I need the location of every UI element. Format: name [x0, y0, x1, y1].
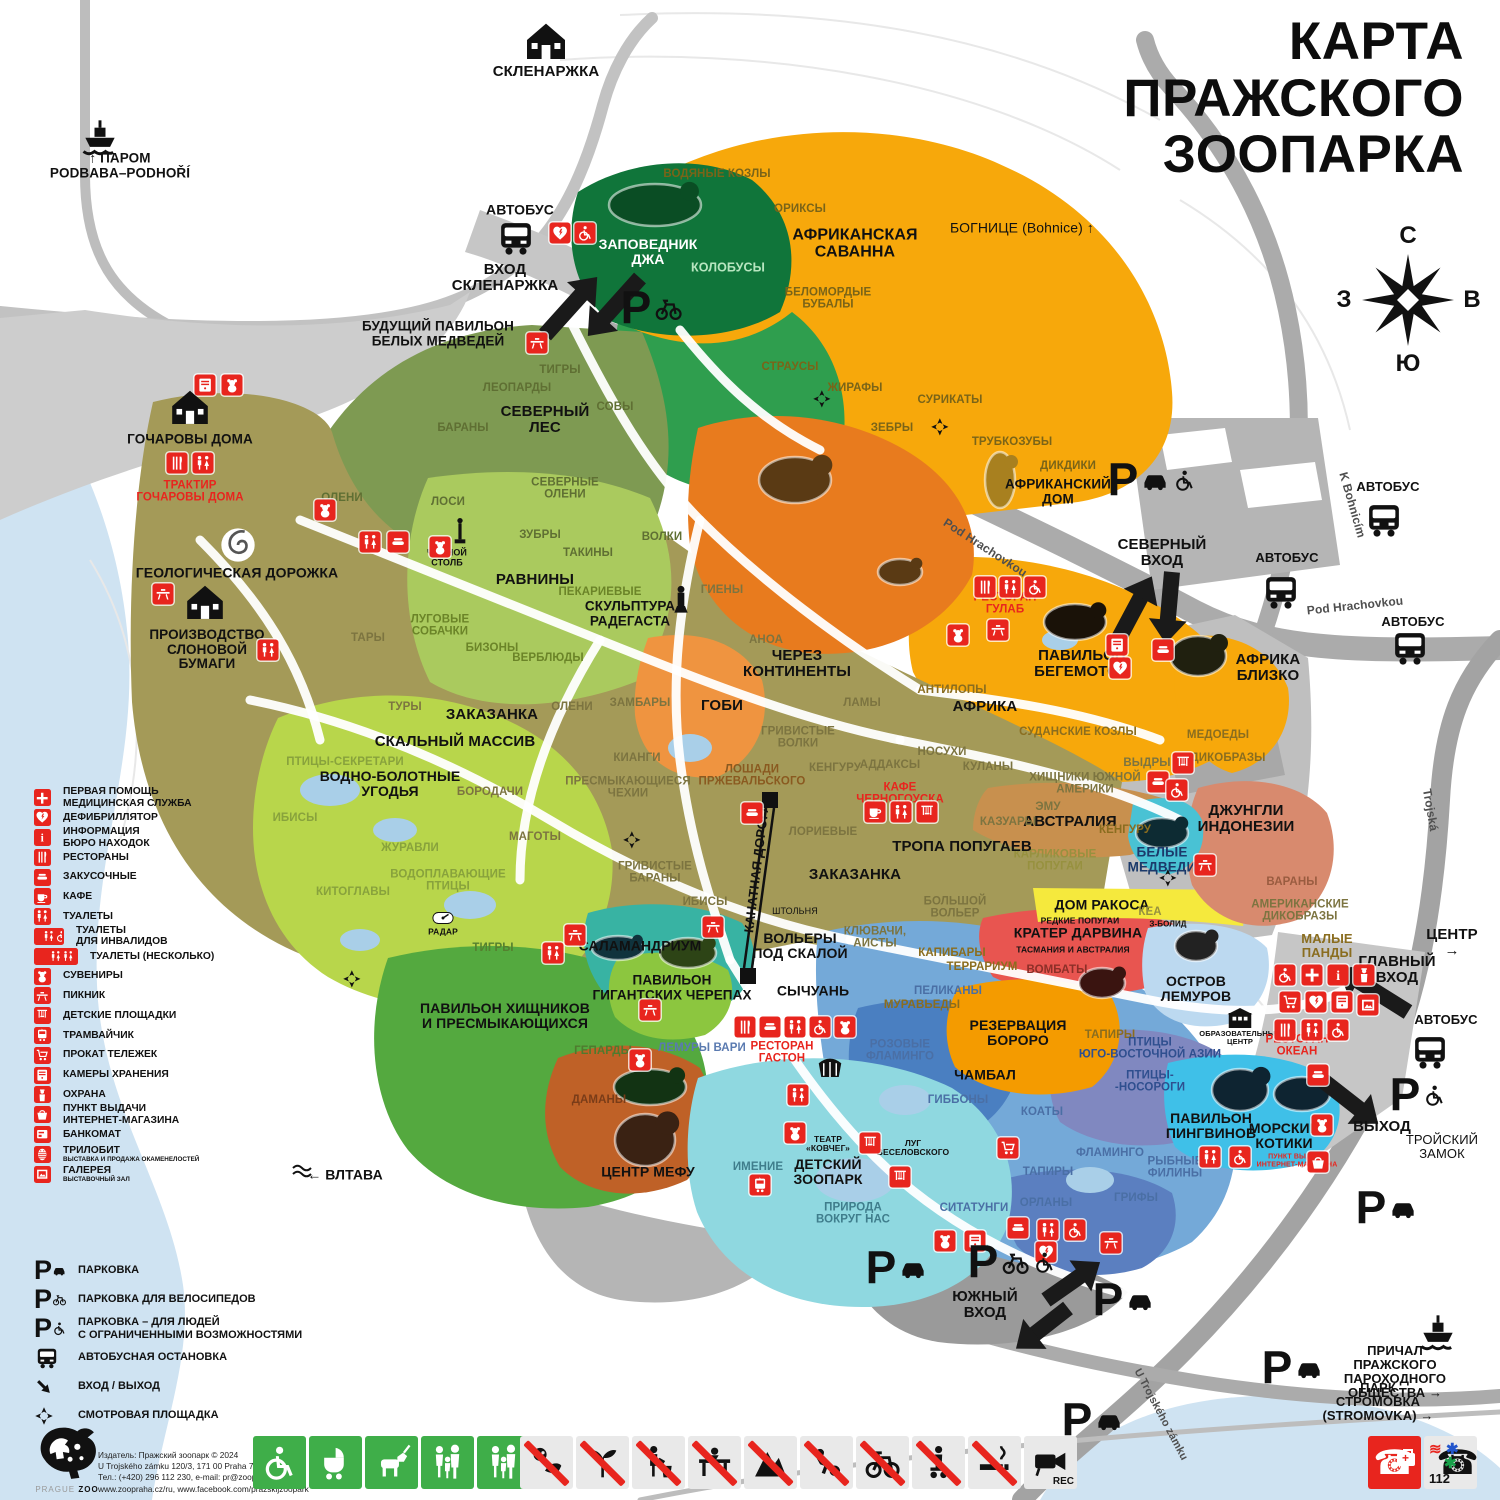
zoo-logo-icon — [36, 1424, 98, 1480]
no-segway-icon — [912, 1436, 965, 1489]
legend-label: ГАЛЕРЕЯВЫСТАВОЧНЫЙ ЗАЛ — [63, 1165, 130, 1184]
footer: PRAGUE ZOO Издатель: Пражский зоопарк © … — [0, 1418, 1500, 1500]
zoo-logo-text: PRAGUE ZOO — [28, 1485, 106, 1494]
legend-item-souv: СУВЕНИРЫ — [34, 966, 294, 986]
legend-label: ТУАЛЕТЫ — [63, 911, 113, 923]
animal-silhouette — [878, 558, 922, 585]
play-icon — [34, 1007, 51, 1024]
animal-silhouette — [1212, 1067, 1270, 1111]
animal-silhouette — [1170, 634, 1228, 676]
title-line: ПРАЖСКОГО — [1123, 71, 1464, 128]
family-icon — [421, 1436, 474, 1489]
legend-label: ИНФОРМАЦИЯ БЮРО НАХОДОК — [63, 826, 150, 849]
legend-label: ПАРКОВКА — [78, 1264, 139, 1276]
p-dis-icon: P — [34, 1315, 68, 1342]
title-line: ЗООПАРКА — [1123, 127, 1464, 184]
legend-label: КАФЕ — [63, 891, 92, 903]
compass-rose — [1362, 254, 1454, 346]
legend-label: ДЕФИБРИЛЛЯТОР — [63, 812, 158, 824]
wheelchair-access-icon — [253, 1436, 306, 1489]
legend-label: ОХРАНА — [63, 1089, 106, 1101]
cctv-rec-icon: REC — [1024, 1436, 1077, 1489]
prohibition-icons: REC — [520, 1436, 1077, 1489]
no-cycling-icon — [856, 1436, 909, 1489]
snack-icon — [34, 869, 51, 886]
picnic-icon — [34, 987, 51, 1004]
legend-label: ПУНКТ ВЫДАЧИ ИНТЕРНЕТ-МАГАЗИНА — [63, 1103, 179, 1126]
legend-item-gallery: ГАЛЕРЕЯВЫСТАВОЧНЫЙ ЗАЛ — [34, 1164, 294, 1184]
legend-label: ТУАЛЕТЫ (НЕСКОЛЬКО) — [90, 951, 214, 963]
legend-item-snack: ЗАКУСОЧНЫЕ — [34, 867, 294, 887]
legend-label: ВХОД / ВЫХОД — [78, 1380, 160, 1392]
legend-label: ТУАЛЕТЫ ДЛЯ ИНВАЛИДОВ — [76, 925, 168, 948]
legend-label: РЕСТОРАНЫ — [63, 852, 129, 864]
aed-icon — [34, 809, 51, 826]
legend-item-cart: ПРОКАТ ТЕЛЕЖЕК — [34, 1045, 294, 1065]
trilobite-icon — [34, 1146, 51, 1163]
legend-label: КАМЕРЫ ХРАНЕНИЯ — [63, 1069, 169, 1081]
bus-icon — [34, 1345, 68, 1371]
dog-on-leash-icon — [365, 1436, 418, 1489]
legend-sublabel: ВЫСТАВКА И ПРОДАЖА ОКАМЕНЕЛОСТЕЙ — [63, 1156, 199, 1163]
no-rock-climbing-icon — [744, 1436, 797, 1489]
emergency-112-icon: ≋✱✱☎112 — [1424, 1436, 1477, 1489]
info-icon — [34, 829, 51, 846]
title-line: КАРТА — [1123, 14, 1464, 71]
emergency-icons: ☎≋✱✱☎112 — [1368, 1436, 1477, 1489]
no-smoking-icon — [968, 1436, 1021, 1489]
cafe-icon — [34, 888, 51, 905]
wcd-icon — [34, 928, 64, 945]
map-title: КАРТА ПРАЖСКОГО ЗООПАРКА — [1123, 14, 1464, 184]
rest-icon — [34, 849, 51, 866]
legend-item-pickup: ПУНКТ ВЫДАЧИ ИНТЕРНЕТ-МАГАЗИНА — [34, 1105, 294, 1125]
p-bike-icon: P — [34, 1286, 68, 1313]
legend-label: ПРОКАТ ТЕЛЕЖЕК — [63, 1049, 157, 1061]
legend-label: ТРАМВАЙЧИК — [63, 1030, 134, 1042]
wc-icon — [34, 908, 51, 925]
fa-icon — [34, 789, 51, 806]
legend-services: ПЕРВАЯ ПОМОЩЬ МЕДИЦИНСКАЯ СЛУЖБАДЕФИБРИЛ… — [34, 788, 294, 1184]
no-littering-icon — [632, 1436, 685, 1489]
animal-silhouette — [1175, 930, 1219, 962]
legend-label: АВТОБУСНАЯ ОСТАНОВКА — [78, 1351, 227, 1363]
zone-dzhungli-indonezii — [1187, 781, 1334, 926]
legend-item-rest: РЕСТОРАНЫ — [34, 847, 294, 867]
legend-item-p-bike: PПАРКОВКА ДЛЯ ВЕЛОСИПЕДОВ — [34, 1285, 314, 1314]
animal-silhouette — [1079, 967, 1126, 999]
pickup-icon — [34, 1106, 51, 1123]
legend-item-guard: ОХРАНА — [34, 1085, 294, 1105]
legend-label: ЗАКУСОЧНЫЕ — [63, 871, 137, 883]
no-feeding-icon — [520, 1436, 573, 1489]
souv-icon — [34, 968, 51, 985]
legend-label: ПАРКОВКА ДЛЯ ВЕЛОСИПЕДОВ — [78, 1293, 256, 1305]
legend-label: ПИКНИК — [63, 990, 105, 1002]
no-sitting-on-barriers-icon — [688, 1436, 741, 1489]
gallery-icon — [34, 1166, 51, 1183]
prague-zoo-map-poster: i — [0, 0, 1500, 1500]
legend-item-wc: ТУАЛЕТЫ — [34, 907, 294, 927]
legend-item-wcmulti: ТУАЛЕТЫ (НЕСКОЛЬКО) — [34, 946, 294, 966]
no-ball-games-icon — [800, 1436, 853, 1489]
legend-label: ТРИЛОБИТВЫСТАВКА И ПРОДАЖА ОКАМЕНЕЛОСТЕЙ — [63, 1145, 199, 1164]
prague-zoo-logo: PRAGUE ZOO — [28, 1424, 106, 1494]
animal-silhouette — [660, 937, 716, 969]
legend-item-info: ИНФОРМАЦИЯ БЮРО НАХОДОК — [34, 828, 294, 848]
legend-item-p-dis: PПАРКОВКА – ДЛЯ ЛЮДЕЙ С ОГРАНИЧЕННЫМИ ВО… — [34, 1314, 314, 1343]
legend-label: ПАРКОВКА – ДЛЯ ЛЮДЕЙ С ОГРАНИЧЕННЫМИ ВОЗ… — [78, 1316, 302, 1341]
legend-label: ДЕТСКИЕ ПЛОЩАДКИ — [63, 1010, 176, 1022]
no-picking-plants-icon — [576, 1436, 629, 1489]
stroller-icon — [309, 1436, 362, 1489]
legend-item-trilobite: ТРИЛОБИТВЫСТАВКА И ПРОДАЖА ОКАМЕНЕЛОСТЕЙ — [34, 1144, 294, 1164]
legend-item-p-car: PПАРКОВКА — [34, 1256, 314, 1285]
zone-ravniny — [407, 472, 671, 704]
legend-item-arrow: ВХОД / ВЫХОД — [34, 1372, 314, 1401]
tram-icon — [34, 1027, 51, 1044]
legend-label: ПЕРВАЯ ПОМОЩЬ МЕДИЦИНСКАЯ СЛУЖБА — [63, 786, 192, 809]
animal-silhouette — [592, 935, 644, 960]
guard-icon — [34, 1086, 51, 1103]
cart-icon — [34, 1047, 51, 1064]
legend-item-play: ДЕТСКИЕ ПЛОЩАДКИ — [34, 1006, 294, 1026]
wcmulti-icon — [34, 948, 78, 965]
legend-transport: PПАРКОВКАPПАРКОВКА ДЛЯ ВЕЛОСИПЕДОВPПАРКО… — [34, 1256, 314, 1430]
legend-item-picnic: ПИКНИК — [34, 986, 294, 1006]
legend-item-wcd: ТУАЛЕТЫ ДЛЯ ИНВАЛИДОВ — [34, 927, 294, 947]
legend-label: БАНКОМАТ — [63, 1129, 121, 1141]
animal-silhouette — [1136, 817, 1188, 849]
animal-silhouette — [1044, 602, 1106, 640]
emergency-phone-icon: ☎ — [1368, 1436, 1421, 1489]
legend-label: СУВЕНИРЫ — [63, 970, 123, 982]
atm-icon — [34, 1126, 51, 1143]
legend-item-lock: КАМЕРЫ ХРАНЕНИЯ — [34, 1065, 294, 1085]
legend-item-bus: АВТОБУСНАЯ ОСТАНОВКА — [34, 1343, 314, 1372]
legend-item-cafe: КАФЕ — [34, 887, 294, 907]
legend-item-tram: ТРАМВАЙЧИК — [34, 1026, 294, 1046]
arrow-icon — [34, 1377, 68, 1397]
accessibility-icons — [253, 1436, 530, 1489]
animal-silhouette — [614, 1067, 686, 1105]
p-car-icon: P — [34, 1257, 68, 1284]
legend-item-aed: ДЕФИБРИЛЛЯТОР — [34, 808, 294, 828]
legend-sublabel: ВЫСТАВОЧНЫЙ ЗАЛ — [63, 1176, 130, 1183]
legend-item-fa: ПЕРВАЯ ПОМОЩЬ МЕДИЦИНСКАЯ СЛУЖБА — [34, 788, 294, 808]
legend-item-atm: БАНКОМАТ — [34, 1125, 294, 1145]
lock-icon — [34, 1067, 51, 1084]
